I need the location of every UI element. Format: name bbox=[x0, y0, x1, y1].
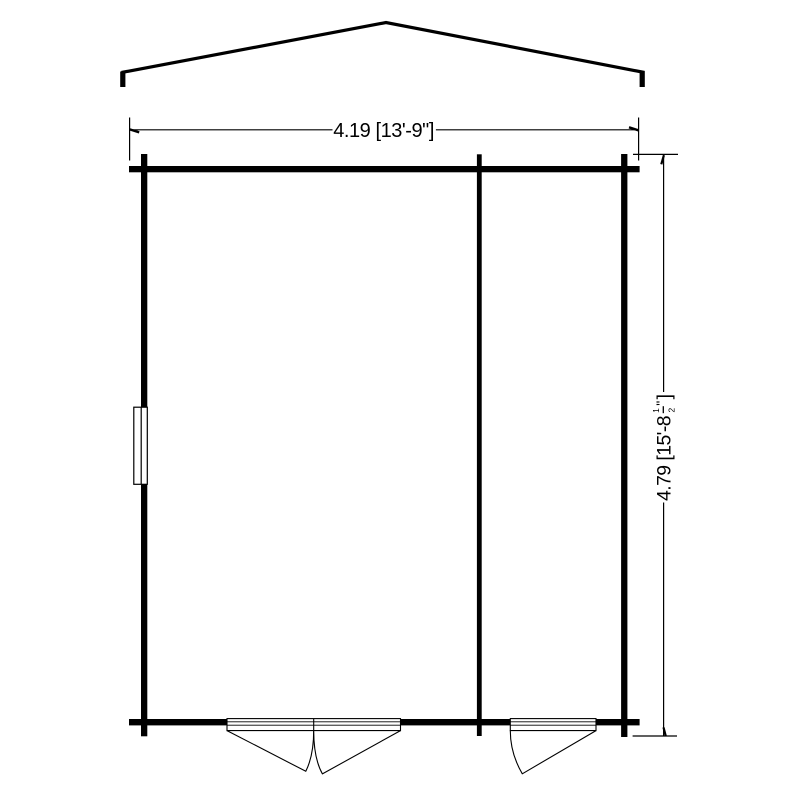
svg-text:]: ] bbox=[653, 394, 675, 399]
svg-text:4.19 [13'-9"]: 4.19 [13'-9"] bbox=[333, 120, 434, 142]
svg-text:": " bbox=[653, 401, 669, 406]
svg-text:4.79 [15'-8: 4.79 [15'-8 bbox=[653, 416, 675, 501]
svg-text:2: 2 bbox=[666, 407, 676, 412]
svg-text:1: 1 bbox=[651, 408, 661, 413]
